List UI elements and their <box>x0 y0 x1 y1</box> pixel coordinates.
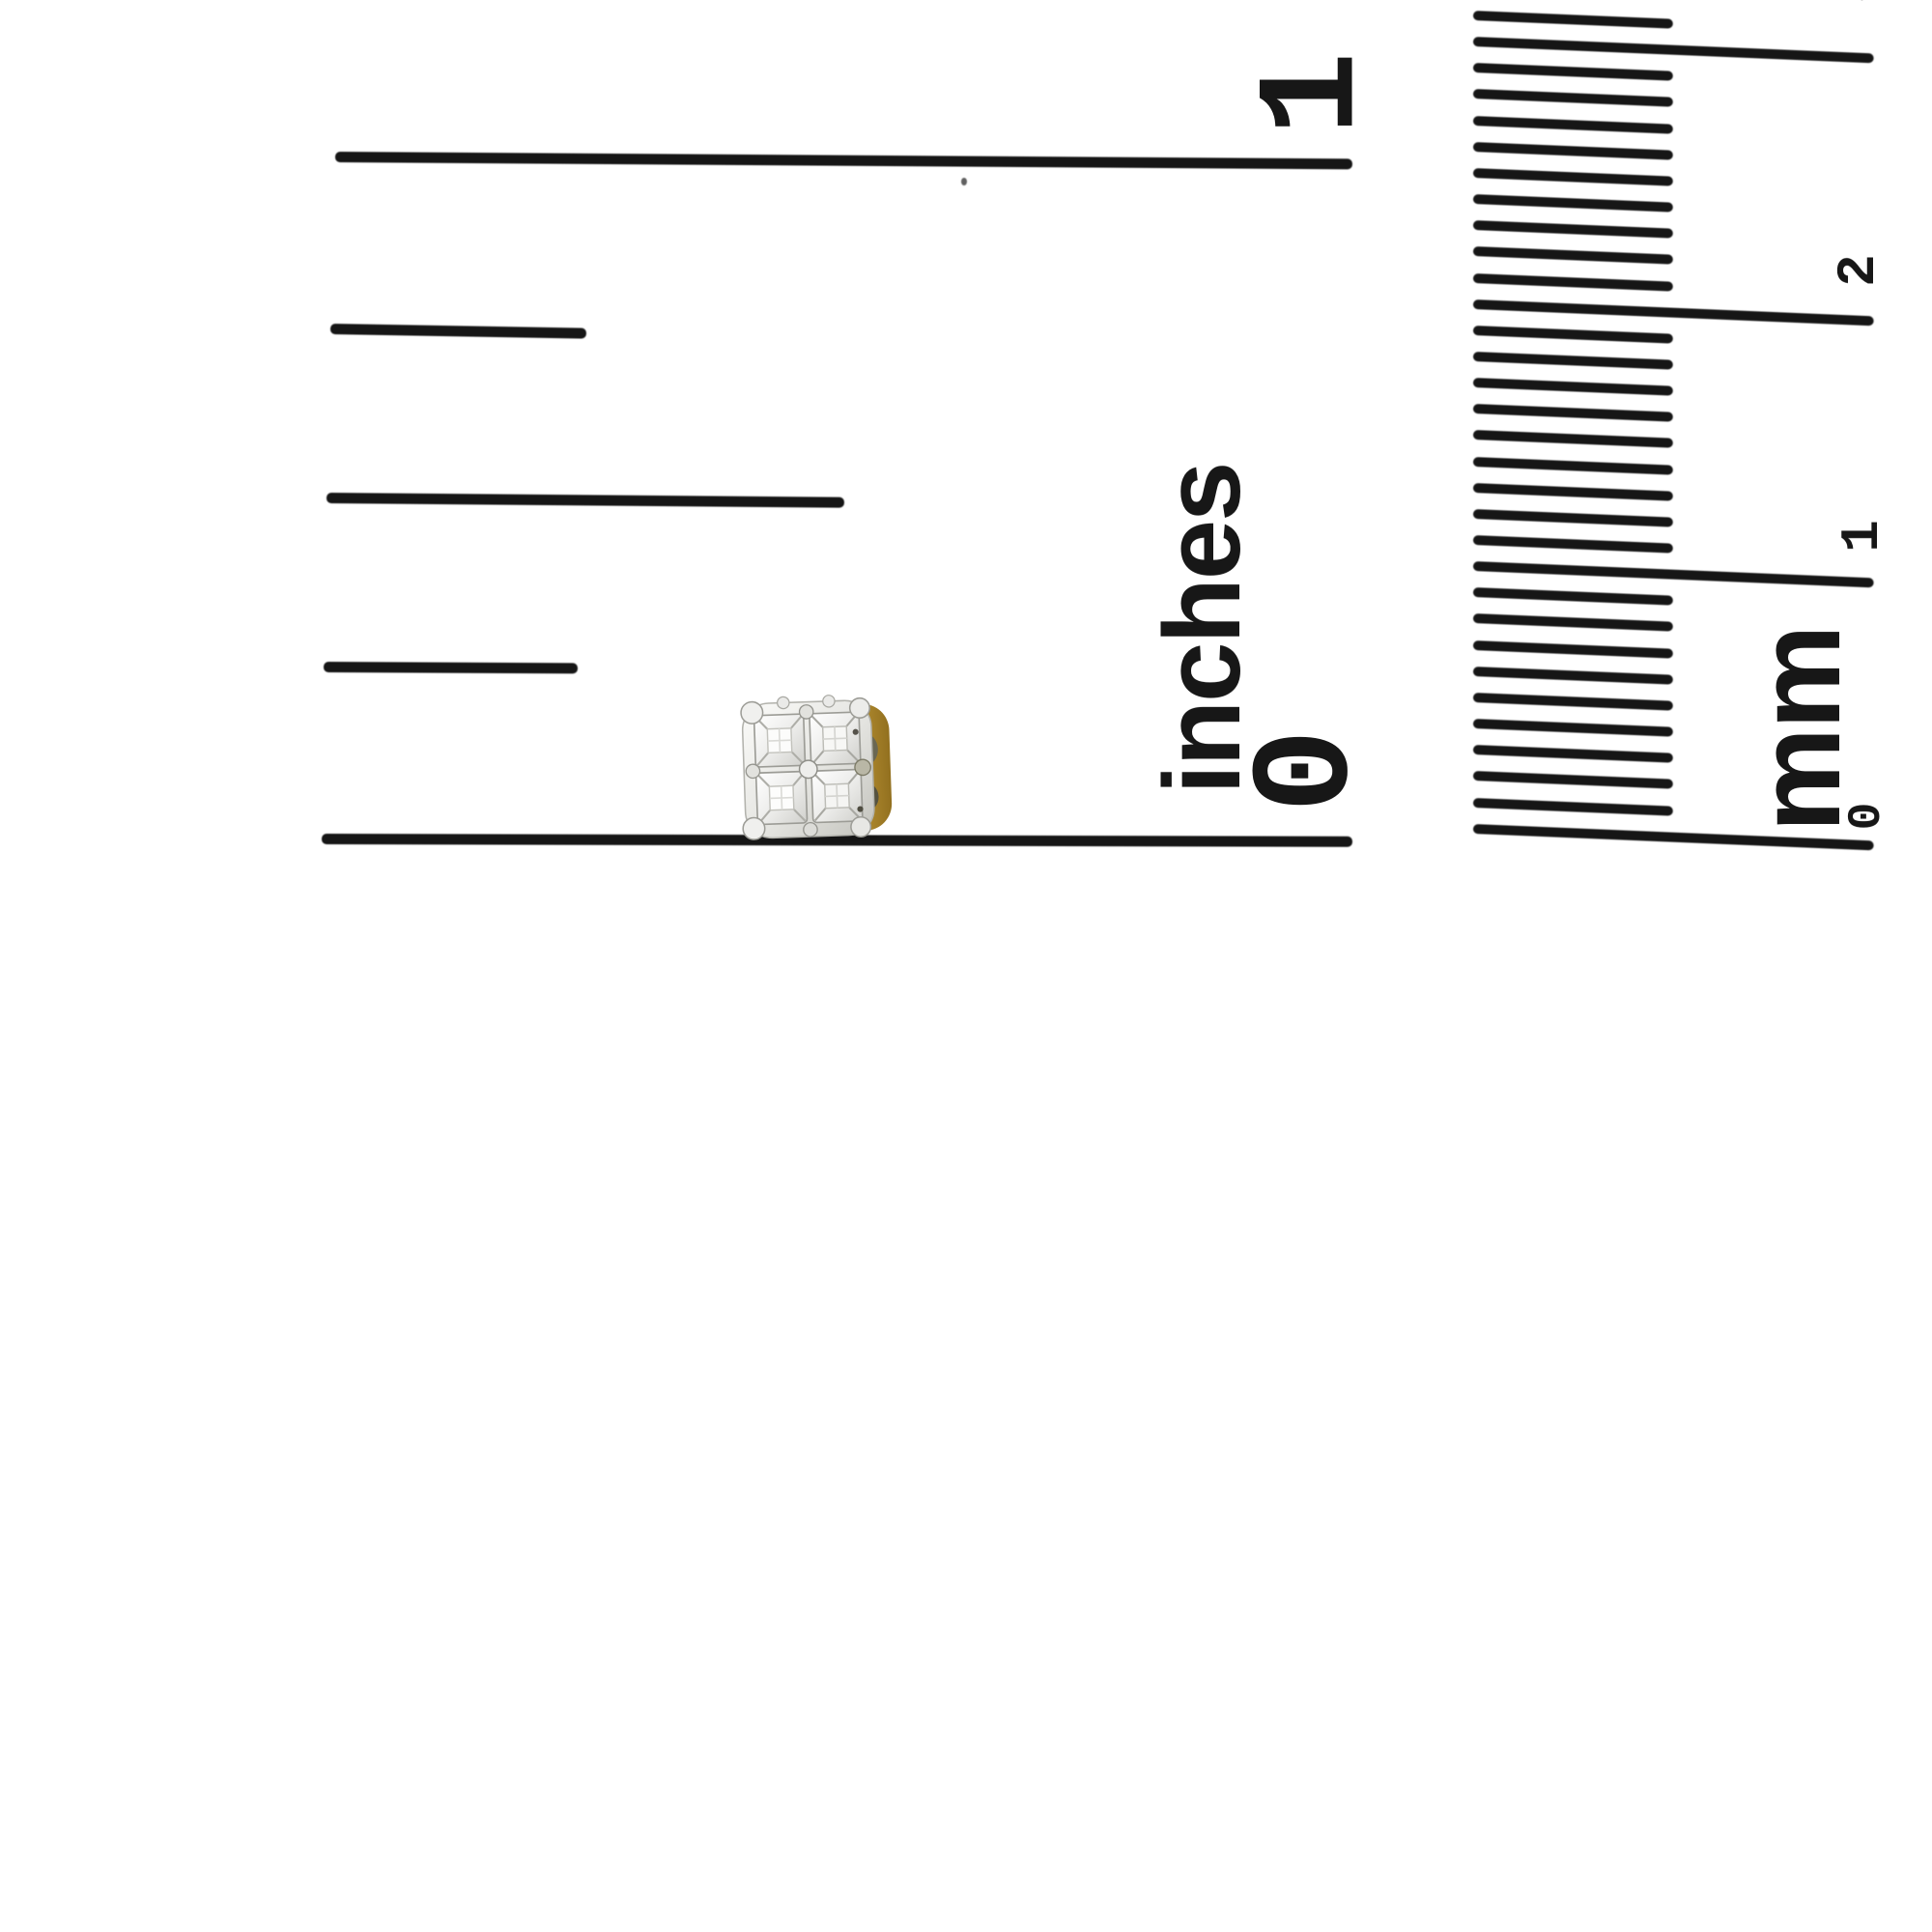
inch-tick-label-1: 1 <box>1245 51 1385 135</box>
mm-tick-minor <box>1473 745 1673 763</box>
mm-tick-minor <box>1473 771 1673 789</box>
mm-tick-minor <box>1473 613 1673 632</box>
mm-tick-minor <box>1473 404 1673 422</box>
mm-tick-minor <box>1473 63 1673 81</box>
mm-tick-minor <box>1473 640 1673 659</box>
inch-tick-0.25 <box>324 662 578 673</box>
mm-tick-minor <box>1473 509 1673 527</box>
mm-tick-label-2cm: 2 <box>1832 254 1886 287</box>
mm-tick-minor <box>1473 535 1673 554</box>
inch-tick-0.5 <box>327 493 844 508</box>
mm-tick-minor <box>1473 587 1673 606</box>
prong <box>799 704 813 719</box>
prong <box>804 822 818 837</box>
prong <box>777 696 789 709</box>
dust-speck <box>961 178 967 185</box>
mm-tick-minor <box>1473 430 1673 448</box>
prong <box>823 695 836 707</box>
mm-tick-minor <box>1473 11 1673 29</box>
mm-tick-minor <box>1473 378 1673 396</box>
mm-tick-minor <box>1473 798 1673 816</box>
prong <box>851 816 871 837</box>
mm-tick-minor <box>1473 273 1673 292</box>
prong <box>849 697 869 718</box>
mm-tick-minor <box>1473 246 1673 265</box>
diamond-cluster-stud-earring <box>738 694 896 844</box>
mm-tick-minor <box>1473 719 1673 737</box>
mm-tick-label-1cm: 1 <box>1835 520 1889 553</box>
mm-tick-minor <box>1473 89 1673 107</box>
mm-tick-major <box>1473 299 1874 326</box>
mm-tick-minor <box>1473 116 1673 134</box>
mm-tick-minor <box>1473 142 1673 160</box>
mm-tick-minor <box>1473 483 1673 501</box>
mm-tick-major <box>1473 561 1874 587</box>
mm-tick-minor <box>1473 457 1673 475</box>
diamond-top-left <box>753 714 805 767</box>
mm-tick-minor <box>1473 326 1673 344</box>
center-prong <box>799 760 817 779</box>
mm-tick-minor <box>1473 220 1673 239</box>
mm-tick-minor <box>1473 168 1673 186</box>
mm-tick-minor <box>1473 667 1673 685</box>
diamond-top-right <box>810 712 861 765</box>
earring-body <box>738 694 893 844</box>
inch-tick-0.75 <box>330 324 586 339</box>
inch-tick-label-0: 0 <box>1239 728 1379 812</box>
mm-tick-minor <box>1473 693 1673 711</box>
inch-tick-1 <box>335 152 1352 169</box>
diamond-bottom-right <box>811 769 863 822</box>
diamond-bottom-left <box>756 771 808 824</box>
mm-tick-major <box>1473 37 1874 63</box>
mm-tick-label-3cm: 3 <box>1830 0 1884 3</box>
photo-stage: 1 inches 0 3 2 1 0 mm <box>0 0 1932 1932</box>
mm-tick-minor <box>1473 194 1673 213</box>
prong <box>743 817 765 839</box>
prong <box>741 701 763 724</box>
prong <box>746 764 760 779</box>
mm-unit-label: mm <box>1740 627 1858 833</box>
prong <box>855 759 871 776</box>
mm-tick-minor <box>1473 352 1673 370</box>
